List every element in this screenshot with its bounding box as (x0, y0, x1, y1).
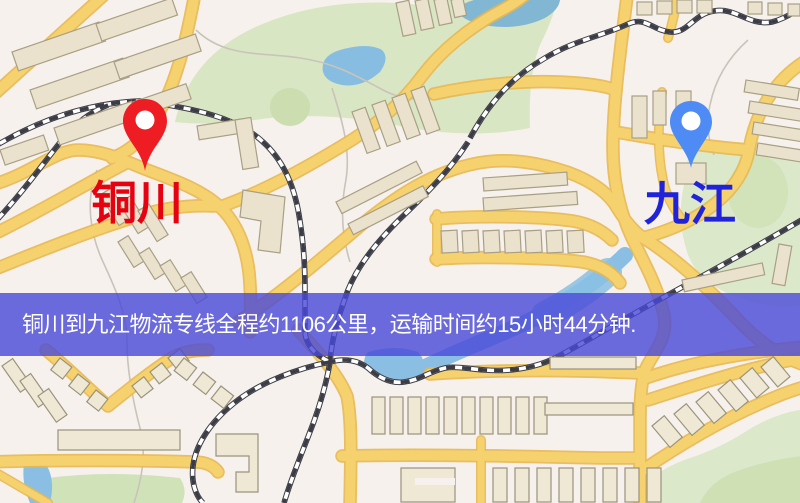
origin-pin-hole (136, 111, 155, 130)
destination-city-label: 九江 (644, 179, 736, 230)
destination-pin-icon (670, 101, 712, 168)
map-screenshot: 铜川 九江 铜川到九江物流专线全程约1106公里，运输时间约15小时44分钟. (0, 0, 800, 503)
route-info-text: 铜川到九江物流专线全程约1106公里，运输时间约15小时44分钟. (22, 312, 636, 337)
origin-city-label: 铜川 (91, 178, 183, 229)
origin-pin (123, 99, 167, 171)
destination-pin-hole (682, 112, 701, 131)
origin-pin-icon (123, 99, 167, 171)
route-info-banner: 铜川到九江物流专线全程约1106公里，运输时间约15小时44分钟. (0, 293, 800, 356)
markers-overlay: 铜川 九江 (0, 0, 800, 503)
destination-pin (670, 101, 712, 168)
